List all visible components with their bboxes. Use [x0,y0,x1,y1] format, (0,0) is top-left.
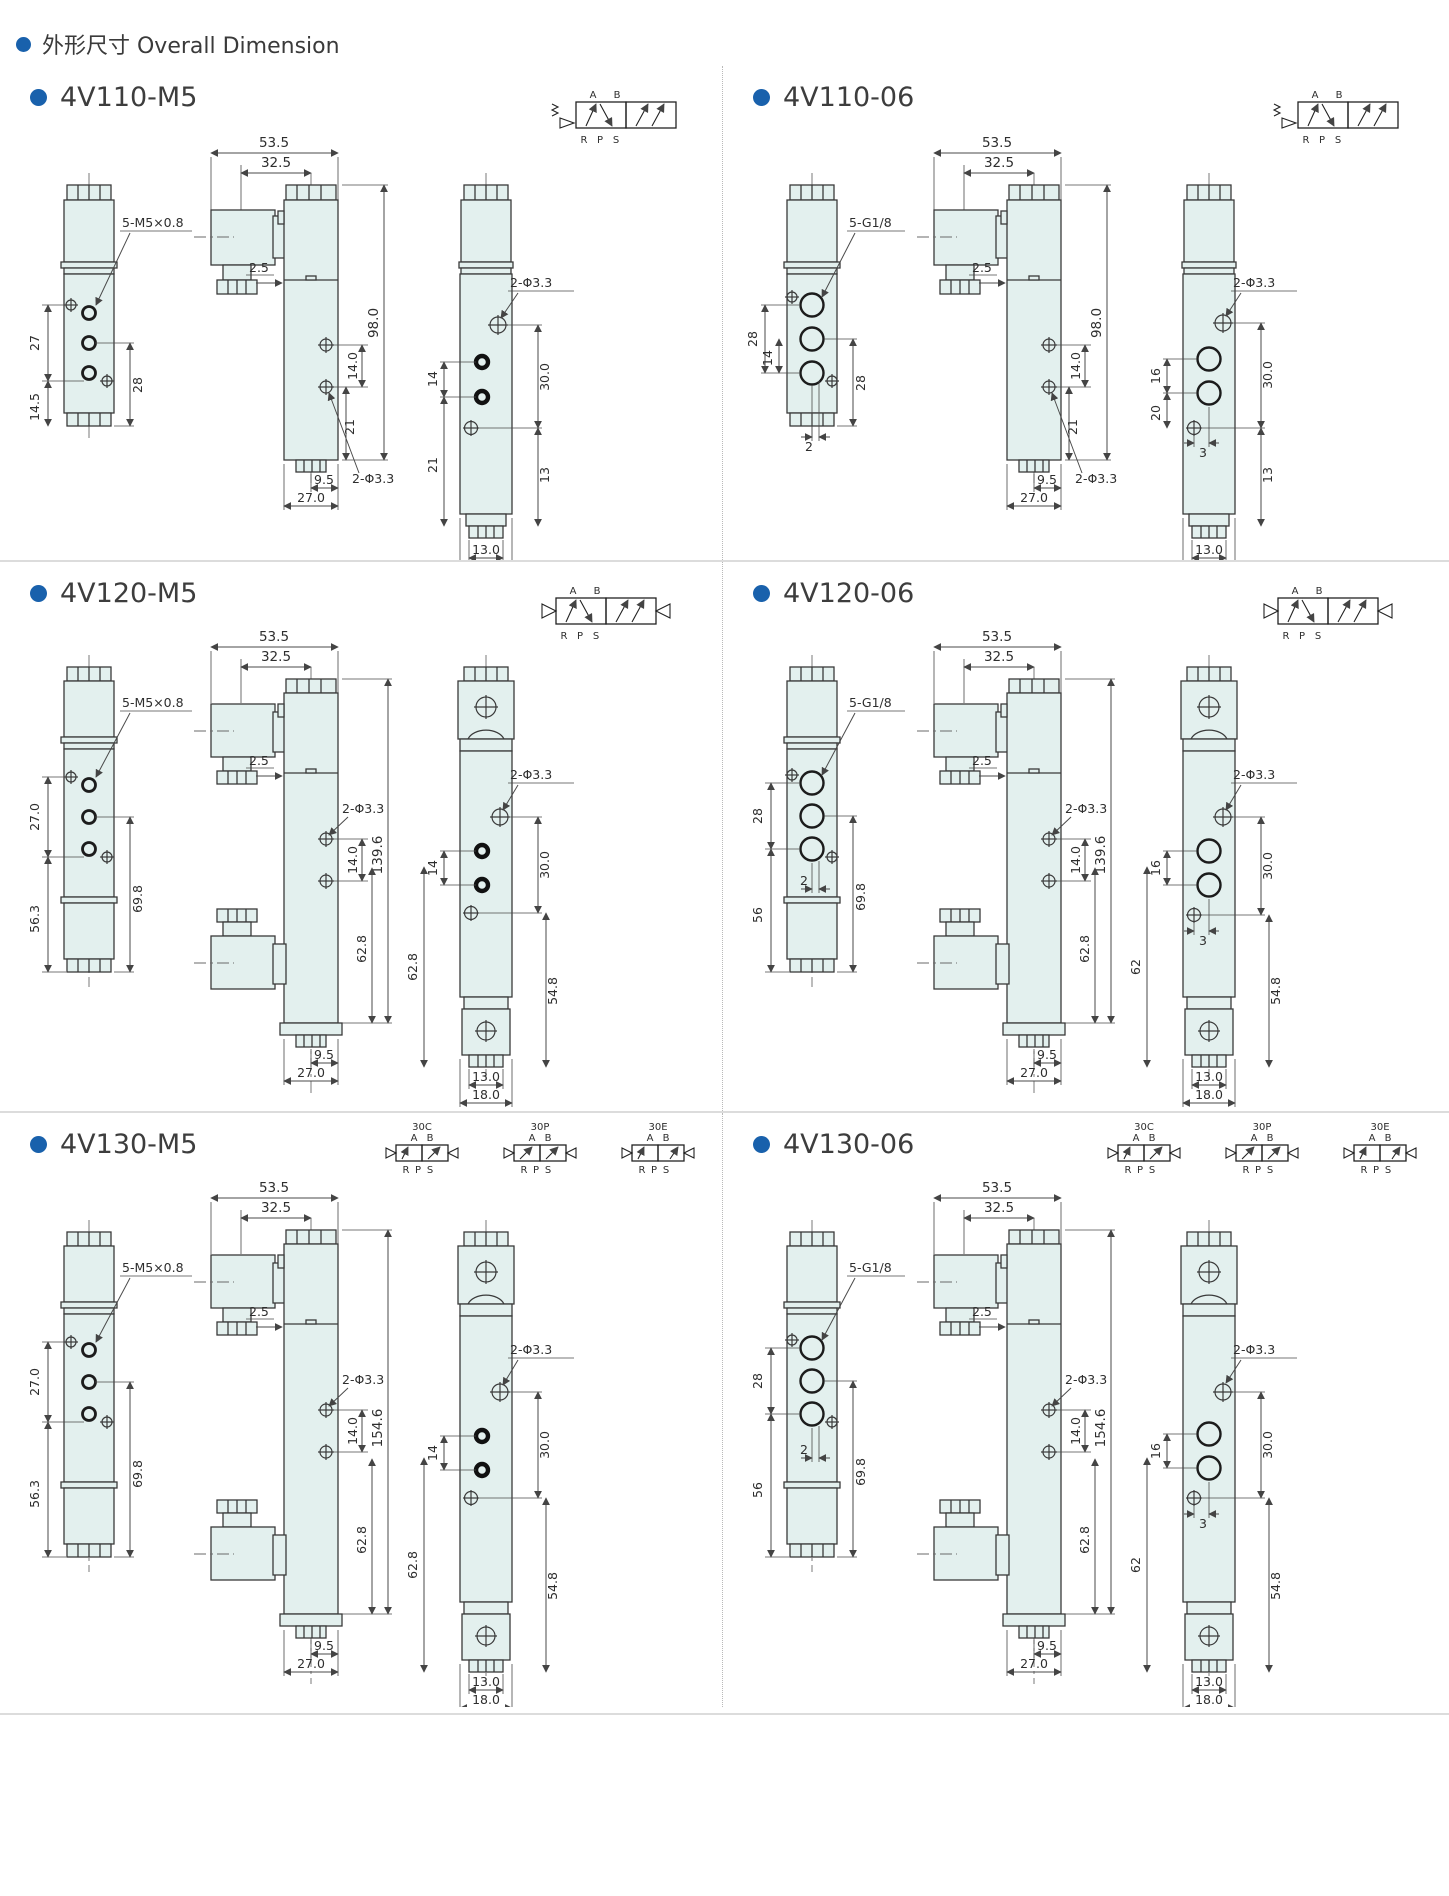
valve-symbols-5-3: 30C A B R P S 30P A B [372,1121,712,1185]
dim-13: 13 [537,467,552,483]
bullet-icon [16,37,31,52]
thread-label: 5-M5×0.8 [122,1260,184,1275]
port-label-p: P [415,1165,421,1176]
dim-53-5: 53.5 [982,1180,1012,1196]
dim-32-5: 32.5 [984,649,1014,665]
dim-28: 28 [750,808,765,824]
dim-69-8: 69.8 [853,1458,868,1486]
panel-4v120-06: 4V120-06 A B R P S [722,562,1444,1111]
port-label-r: R [1283,631,1290,642]
section-divider [0,1713,1449,1715]
dim-27-0: 27.0 [27,803,42,831]
thread-label: 5-M5×0.8 [122,215,184,230]
panel-4v130-m5: 4V130-M5 30C A B R P S 30P [0,1113,722,1707]
valve-symbol-5-2-single: A B R P S [536,86,686,148]
dimension-drawing: 28 56 2 69.8 5-G1/8 [729,1162,1389,1707]
dim-154-6: 154.6 [370,1409,386,1448]
symbol-30c: 30C A B R P S [386,1122,458,1176]
left-view: 28 56 2 69.8 5-G1/8 [750,1220,905,1572]
dim-13-0: 13.0 [1195,1674,1223,1689]
dim-54-8: 54.8 [545,977,560,1005]
model-name: 4V130-06 [783,1129,914,1160]
dim-phi: 2-Φ3.3 [1233,767,1275,782]
port-label-r: R [521,1165,528,1176]
bullet-icon [30,1136,47,1153]
dim-28: 28 [853,375,868,391]
page-header: 外形尺寸 Overall Dimension [0,0,1449,66]
port-label-r: R [1125,1165,1132,1176]
symbol-tag: 30C [412,1122,432,1133]
port-label-s: S [427,1165,433,1176]
panel-4v130-06: 4V130-06 30C A B R P S 30P [722,1113,1444,1707]
dim-53-5: 53.5 [259,135,289,151]
dim-phi: 2-Φ3.3 [1065,801,1107,816]
port-label-a: A [1312,90,1319,101]
dim-3: 3 [1199,1516,1207,1531]
side-view: 14 30.0 62.8 54.8 2-Φ3.3 13.0 [405,655,574,1107]
dim-14: 14 [425,860,440,876]
symbol-tag: 30C [1134,1122,1154,1133]
port-label-r: R [1361,1165,1368,1176]
port-label-a: A [647,1133,654,1144]
port-label-b: B [1149,1133,1156,1144]
dim-phi: 2-Φ3.3 [1075,471,1117,486]
dim-phi: 2-Φ3.3 [510,767,552,782]
dim-13-0: 13.0 [472,1674,500,1689]
dim-62-8: 62.8 [354,935,369,963]
dim-phi: 2-Φ3.3 [1233,1342,1275,1357]
dim-30-0: 30.0 [1260,361,1275,389]
front-view: 53.5 32.5 2.5 [917,1180,1115,1684]
dim-13-0: 13.0 [472,1069,500,1084]
port-label-p: P [1319,135,1325,146]
valve-symbol-5-2-double: A B R P S [1248,582,1408,644]
dim-56-3: 56.3 [27,905,42,933]
bullet-icon [753,89,770,106]
dim-9-5: 9.5 [314,472,334,487]
valve-symbol-5-2-single: A B R P S [1258,86,1408,148]
dim-154-6: 154.6 [1093,1409,1109,1448]
dim-9-5: 9.5 [1037,1638,1057,1653]
dim-2-5: 2.5 [249,753,269,768]
side-view: 14 30.0 62.8 54.8 2-Φ3.3 13.0 [405,1220,574,1707]
dim-9-5: 9.5 [314,1638,334,1653]
dimension-drawing: 27 14.5 28 5-M5×0.8 53.5 [6,115,666,560]
port-label-a: A [1133,1133,1140,1144]
port-label-a: A [529,1133,536,1144]
port-label-p: P [577,631,583,642]
dim-2-5: 2.5 [972,1304,992,1319]
symbol-30p: 30P A B R P S [1226,1122,1298,1176]
panel-4v110-06: 4V110-06 A B R P S [722,66,1444,560]
dim-62-8: 62.8 [405,953,420,981]
dim-18-0: 18.0 [1195,1692,1223,1707]
dim-69-8: 69.8 [130,885,145,913]
port-label-p: P [533,1165,539,1176]
port-label-r: R [1303,135,1310,146]
front-view: 53.5 32.5 2.5 [917,135,1117,510]
symbol-tag: 30E [1370,1122,1389,1133]
port-label-p: P [597,135,603,146]
panel-4v120-m5: 4V120-M5 A B R P S [0,562,722,1111]
dimension-drawing: 27.0 56.3 69.8 5-M5×0.8 53.5 [6,611,666,1111]
dim-phi: 2-Φ3.3 [342,801,384,816]
front-view: 53.5 32.5 2.5 [194,629,392,1093]
port-label-a: A [1251,1133,1258,1144]
row-4v130: 4V130-M5 30C A B R P S 30P [0,1111,1449,1707]
symbol-30e: 30E A B R P S [622,1122,694,1176]
dim-phi: 2-Φ3.3 [1065,1372,1107,1387]
dim-53-5: 53.5 [259,629,289,645]
dim-27: 27 [27,335,42,351]
row-4v120: 4V120-M5 A B R P S [0,560,1449,1111]
dim-62: 62 [1128,1557,1143,1573]
symbol-tag: 30P [531,1122,550,1133]
side-view: 14 21 30.0 13 2-Φ3.3 13.0 18.0 [425,173,574,560]
dim-62-8: 62.8 [1077,935,1092,963]
dim-30-0: 30.0 [537,363,552,391]
port-label-s: S [1385,1165,1391,1176]
port-label-a: A [570,586,577,597]
port-label-a: A [1292,586,1299,597]
dim-30-0: 30.0 [537,851,552,879]
dim-27-0: 27.0 [1020,490,1048,505]
port-label-b: B [614,90,621,101]
side-view: 16 20 3 30.0 13 2-Φ3.3 [1148,173,1297,560]
dim-9-5: 9.5 [314,1047,334,1062]
left-view: 28 14 2 28 5-G1/8 [745,173,905,454]
dim-54-8: 54.8 [545,1572,560,1600]
dim-phi: 2-Φ3.3 [1233,275,1275,290]
port-label-b: B [1336,90,1343,101]
dim-2-5: 2.5 [249,1304,269,1319]
dim-14: 14 [425,371,440,387]
dim-13: 13 [1260,467,1275,483]
dimension-drawing: 27.0 56.3 69.8 5-M5×0.8 53.5 [6,1162,666,1707]
dim-2: 2 [800,1442,808,1457]
symbol-tag: 30E [648,1122,667,1133]
dim-14: 14 [760,350,775,366]
port-label-r: R [581,135,588,146]
dim-30-0: 30.0 [1260,1431,1275,1459]
front-view: 53.5 32.5 2.5 [194,1180,392,1684]
thread-label: 5-M5×0.8 [122,695,184,710]
dim-62-8: 62.8 [354,1526,369,1554]
dim-27-0: 27.0 [297,490,325,505]
port-label-s: S [1335,135,1341,146]
port-label-b: B [1267,1133,1274,1144]
left-view: 27.0 56.3 69.8 5-M5×0.8 [27,655,192,987]
side-view: 16 3 30.0 62 54.8 2-Φ3.3 [1128,1220,1297,1707]
dim-phi: 2-Φ3.3 [342,1372,384,1387]
dim-27-0: 27.0 [1020,1656,1048,1671]
dim-2-5: 2.5 [249,260,269,275]
port-label-s: S [1149,1165,1155,1176]
row-4v110: 4V110-M5 A B R P S [0,66,1449,560]
dim-27-0: 27.0 [27,1368,42,1396]
port-label-p: P [1255,1165,1261,1176]
dim-53-5: 53.5 [259,1180,289,1196]
dim-13-0: 13.0 [1195,542,1223,557]
dim-27-0: 27.0 [297,1656,325,1671]
dim-56: 56 [750,1482,765,1498]
port-label-a: A [411,1133,418,1144]
dim-56-3: 56.3 [27,1480,42,1508]
thread-label: 5-G1/8 [849,1260,892,1275]
dim-28: 28 [750,1373,765,1389]
port-label-s: S [593,631,599,642]
dim-28: 28 [745,331,760,347]
dim-30-0: 30.0 [537,1431,552,1459]
dim-32-5: 32.5 [261,155,291,171]
port-label-s: S [1267,1165,1273,1176]
dimension-drawing: 28 14 2 28 5-G1/8 [729,115,1389,560]
dim-14-0: 14.0 [345,846,360,874]
dim-phi: 2-Φ3.3 [510,1342,552,1357]
dim-2-5: 2.5 [972,753,992,768]
dim-69-8: 69.8 [130,1460,145,1488]
dim-53-5: 53.5 [982,629,1012,645]
page: 外形尺寸 Overall Dimension 4V110-M5 A B R P [0,0,1449,1896]
port-label-a: A [1369,1133,1376,1144]
left-view: 27 14.5 28 5-M5×0.8 [27,173,192,440]
symbol-30c: 30C A B R P S [1108,1122,1180,1176]
model-name: 4V120-M5 [60,578,197,609]
dim-62: 62 [1128,959,1143,975]
port-label-s: S [1315,631,1321,642]
valve-symbols-5-3: 30C A B R P S 30P A B [1094,1121,1434,1185]
thread-label: 5-G1/8 [849,215,892,230]
dim-14-0: 14.0 [1068,352,1083,380]
model-name: 4V120-06 [783,578,914,609]
symbol-30p: 30P A B R P S [504,1122,576,1176]
port-label-s: S [613,135,619,146]
dim-30-0: 30.0 [1260,852,1275,880]
dim-16: 16 [1148,1443,1163,1459]
dim-54-8: 54.8 [1268,1572,1283,1600]
dim-phi: 2-Φ3.3 [352,471,394,486]
port-label-b: B [663,1133,670,1144]
dim-14-0: 14.0 [345,352,360,380]
port-label-b: B [1385,1133,1392,1144]
dim-14-5: 14.5 [27,393,42,421]
bullet-icon [753,1136,770,1153]
dim-98-0: 98.0 [366,308,382,338]
dim-32-5: 32.5 [984,155,1014,171]
model-name: 4V110-M5 [60,82,197,113]
dim-28: 28 [130,377,145,393]
dim-3: 3 [1199,445,1207,460]
dim-18-0: 18.0 [472,1087,500,1102]
port-label-b: B [1316,586,1323,597]
dim-13-0: 13.0 [472,542,500,557]
panel-4v110-m5: 4V110-M5 A B R P S [0,66,722,560]
page-title: 外形尺寸 Overall Dimension [42,28,340,60]
dim-9-5: 9.5 [1037,1047,1057,1062]
dim-9-5: 9.5 [1037,472,1057,487]
dim-16: 16 [1148,368,1163,384]
model-name: 4V110-06 [783,82,914,113]
port-label-s: S [663,1165,669,1176]
port-label-r: R [561,631,568,642]
symbol-30e: 30E A B R P S [1344,1122,1416,1176]
bullet-icon [30,89,47,106]
port-label-p: P [1373,1165,1379,1176]
dim-3: 3 [1199,933,1207,948]
dim-13-0: 13.0 [1195,1069,1223,1084]
dim-14-0: 14.0 [1068,1417,1083,1445]
thread-label: 5-G1/8 [849,695,892,710]
dim-27-0: 27.0 [1020,1065,1048,1080]
dim-62-8: 62.8 [1077,1526,1092,1554]
dim-14-0: 14.0 [1068,846,1083,874]
dim-54-8: 54.8 [1268,977,1283,1005]
dim-2: 2 [805,439,813,454]
dim-21: 21 [425,457,440,473]
dim-98-0: 98.0 [1089,308,1105,338]
symbol-tag: 30P [1253,1122,1272,1133]
dim-18-0: 18.0 [1195,1087,1223,1102]
dim-16: 16 [1148,860,1163,876]
port-label-b: B [427,1133,434,1144]
model-name: 4V130-M5 [60,1129,197,1160]
dim-27-0: 27.0 [297,1065,325,1080]
left-view: 27.0 56.3 69.8 5-M5×0.8 [27,1220,192,1572]
side-view: 16 3 30.0 62 54.8 2-Φ3.3 [1128,655,1297,1107]
dim-14-0: 14.0 [345,1417,360,1445]
front-view: 53.5 32.5 2.5 [917,629,1115,1093]
dim-53-5: 53.5 [982,135,1012,151]
dim-18-0: 18.0 [472,1692,500,1707]
left-view: 28 56 2 69.8 5-G1/8 [750,655,905,987]
dim-2-5: 2.5 [972,260,992,275]
dim-62-8: 62.8 [405,1551,420,1579]
dim-20: 20 [1148,405,1163,421]
port-label-p: P [1299,631,1305,642]
port-label-p: P [1137,1165,1143,1176]
port-label-r: R [403,1165,410,1176]
dim-32-5: 32.5 [261,1200,291,1216]
bullet-icon [753,585,770,602]
dim-14: 14 [425,1445,440,1461]
dim-32-5: 32.5 [261,649,291,665]
port-label-p: P [651,1165,657,1176]
dim-2: 2 [800,873,808,888]
valve-symbol-5-2-double: A B R P S [526,582,686,644]
port-label-b: B [545,1133,552,1144]
dimension-drawing: 28 56 2 69.8 5-G1/8 [729,611,1389,1111]
port-label-s: S [545,1165,551,1176]
dim-56: 56 [750,907,765,923]
port-label-b: B [594,586,601,597]
dim-69-8: 69.8 [853,883,868,911]
bullet-icon [30,585,47,602]
dim-phi: 2-Φ3.3 [510,275,552,290]
dim-32-5: 32.5 [984,1200,1014,1216]
port-label-r: R [639,1165,646,1176]
front-view: 53.5 32.5 2.5 [194,135,394,510]
port-label-r: R [1243,1165,1250,1176]
port-label-a: A [590,90,597,101]
